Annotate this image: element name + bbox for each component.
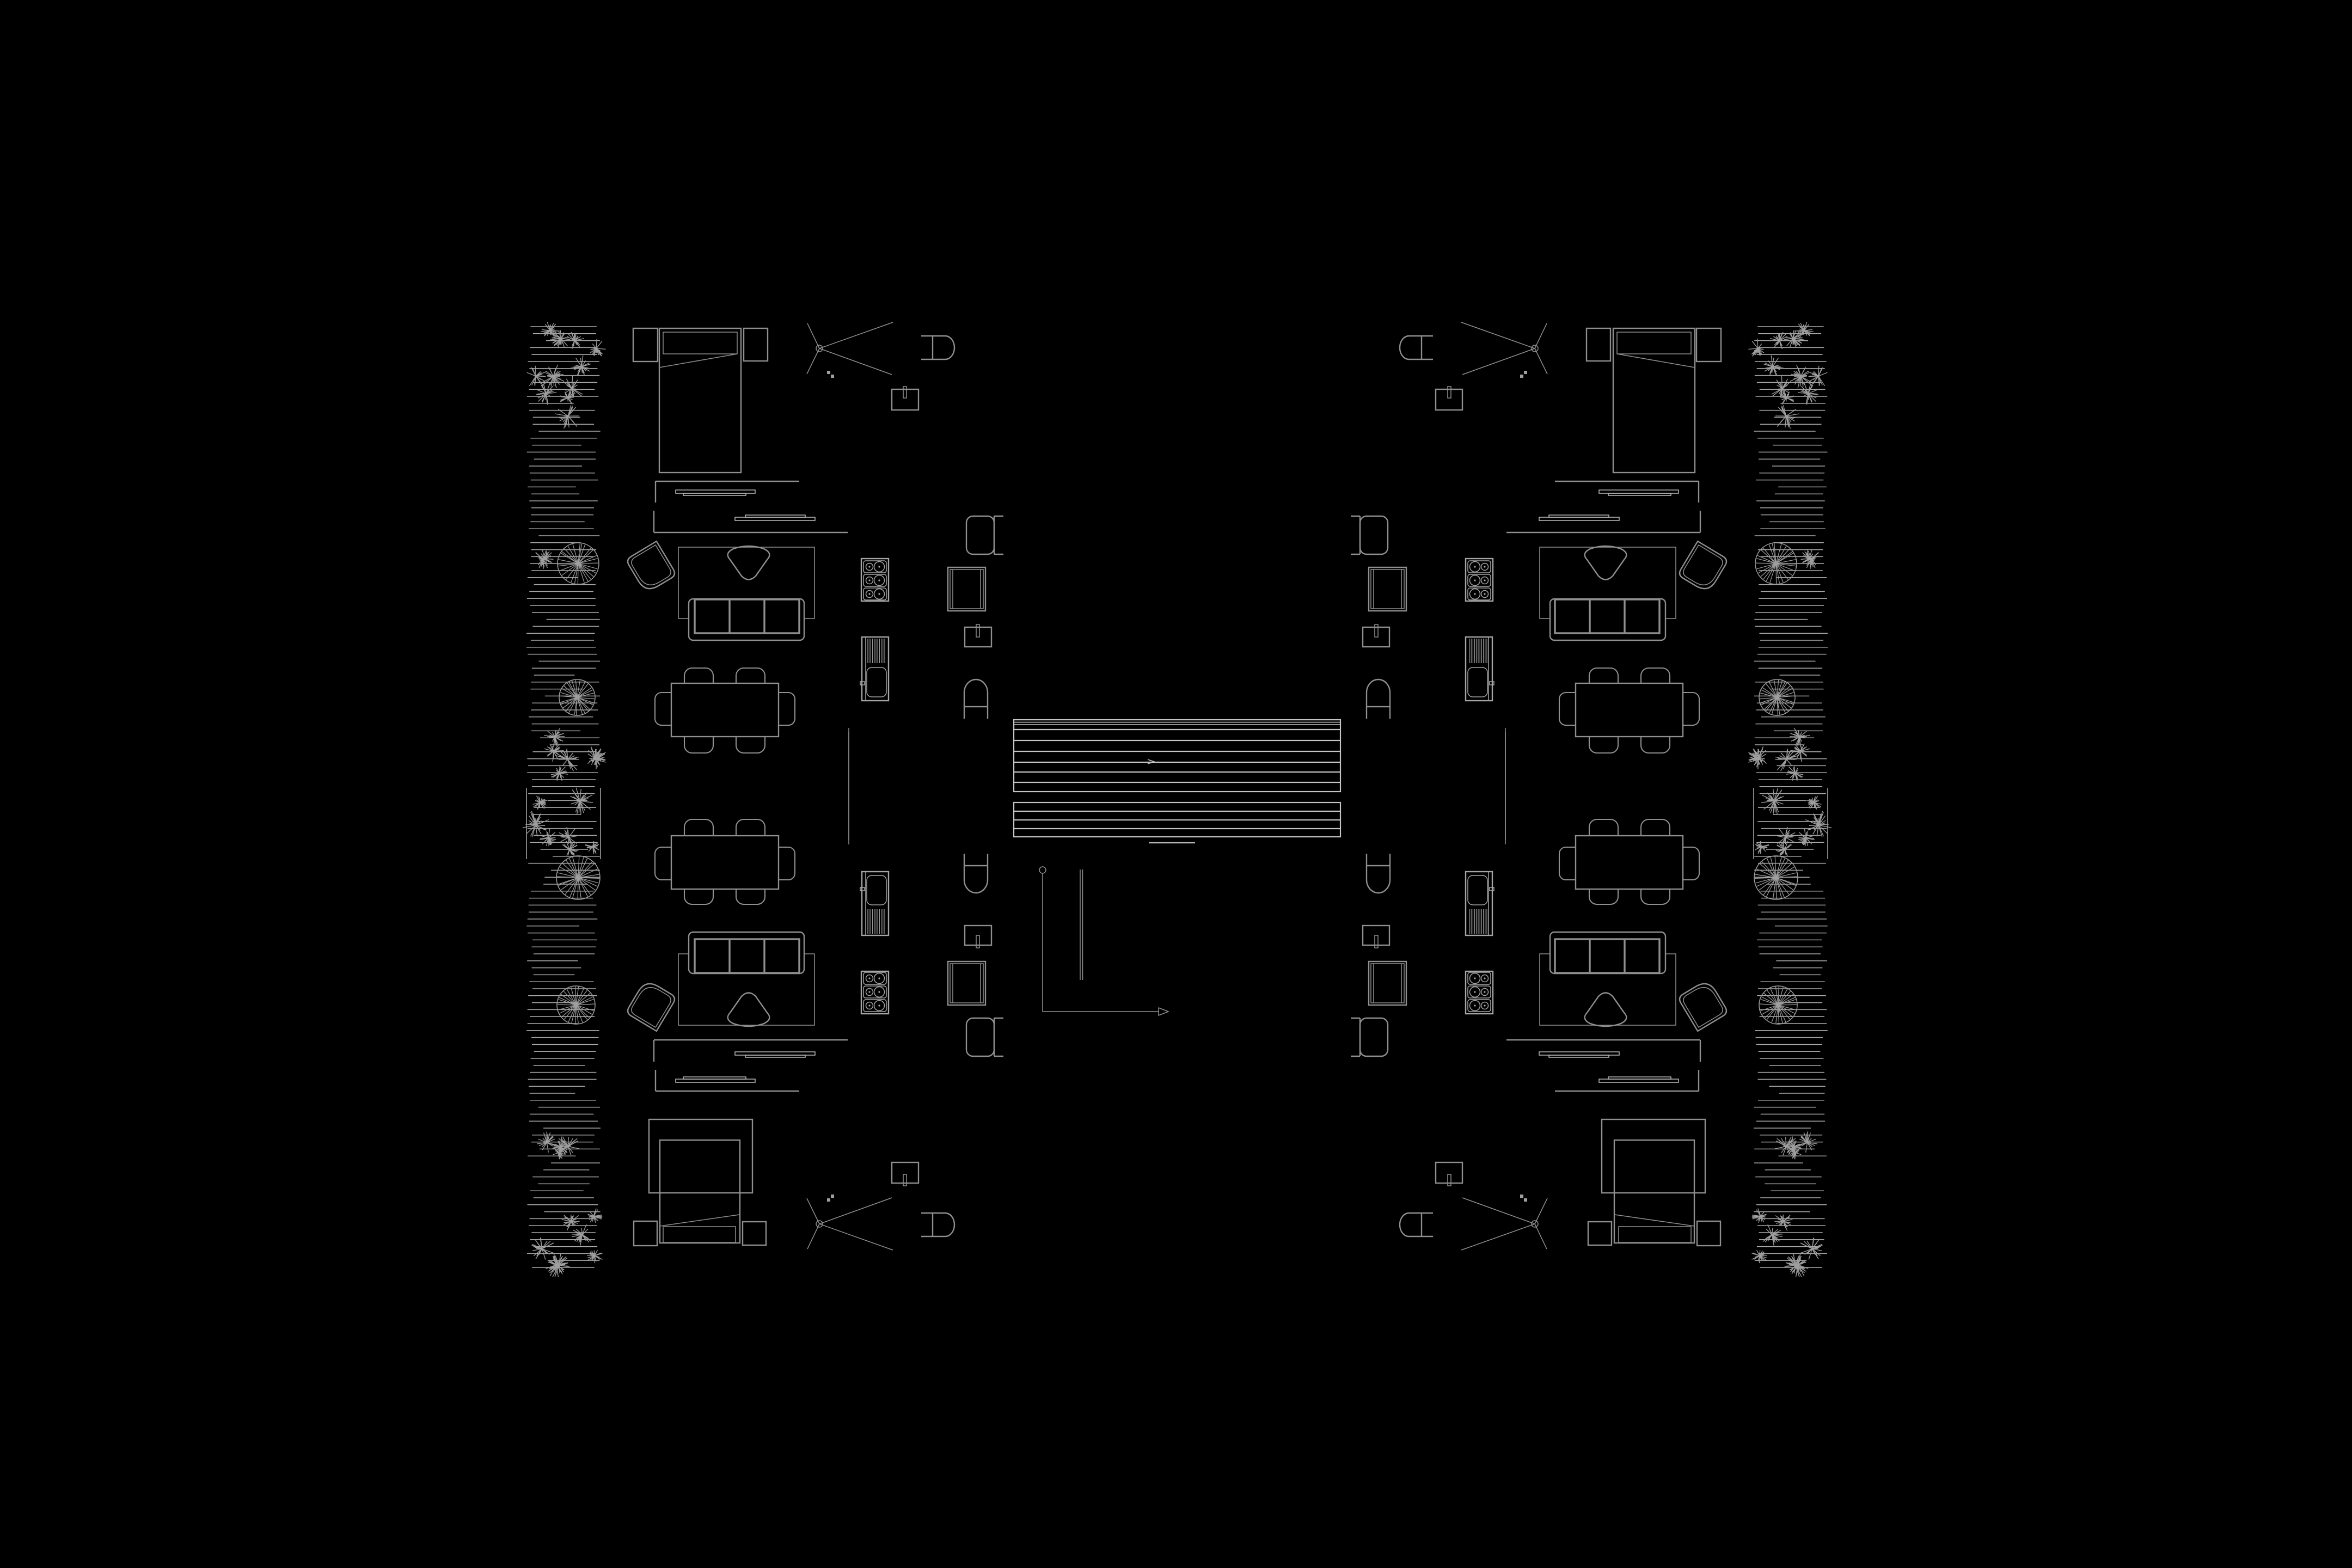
floor-plan-canvas <box>0 0 2352 1568</box>
floor-plan <box>0 0 2352 1568</box>
